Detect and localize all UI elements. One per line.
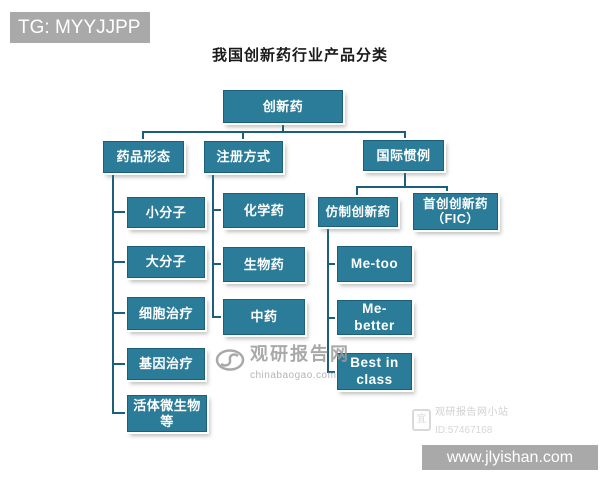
node-biological-drug: 生物药 — [223, 247, 305, 282]
node-root: 创新药 — [223, 90, 343, 123]
connector-line — [356, 186, 448, 188]
node-me-too: Me-too — [337, 246, 412, 282]
chinabaogao-watermark: 观研报告网 chinabaogao.com — [214, 344, 350, 383]
node-small-molecule: 小分子 — [127, 197, 205, 228]
connector-line — [242, 131, 244, 141]
diagram-title: 我国创新药行业产品分类 — [0, 44, 600, 65]
node-me-better: Me-better — [337, 300, 412, 335]
node-registration: 注册方式 — [204, 141, 283, 173]
connector-line — [112, 363, 127, 365]
site-url-banner: www.jlyishan.com — [422, 445, 598, 470]
connector-line — [112, 312, 127, 314]
connector-line — [356, 186, 358, 197]
connector-line — [327, 263, 337, 265]
node-cell-therapy: 细胞治疗 — [127, 297, 205, 330]
corner-watermark-id: ID:57467168 — [435, 425, 492, 436]
node-imitative-innovative: 仿制创新药 — [318, 197, 398, 227]
corner-watermark-name: 观研报告网小站 — [435, 407, 509, 418]
site-corner-watermark: 宜 观研报告网小站 ID:57467168 — [412, 402, 509, 438]
node-large-molecule: 大分子 — [127, 246, 205, 278]
watermark-domain-text: chinabaogao.com — [250, 370, 336, 381]
node-tcm-drug: 中药 — [223, 299, 305, 335]
connector-line — [142, 131, 144, 141]
connector-line — [404, 131, 406, 140]
connector-line — [112, 261, 127, 263]
node-drug-form: 药品形态 — [103, 141, 184, 173]
connector-line — [212, 209, 223, 211]
tg-watermark-banner: TG: MYYJJPP — [10, 12, 150, 43]
connector-line — [446, 186, 448, 193]
node-international: 国际惯例 — [363, 140, 444, 171]
connector-line — [327, 317, 337, 319]
eye-swirl-logo-icon — [214, 346, 246, 378]
connector-line — [142, 131, 406, 133]
site-badge-icon: 宜 — [412, 409, 431, 431]
connector-line — [212, 173, 214, 317]
node-gene-therapy: 基因治疗 — [127, 348, 205, 380]
node-first-in-class: 首创创新药 （FIC） — [413, 193, 498, 230]
connector-line — [212, 316, 223, 318]
watermark-brand-text: 观研报告网 — [250, 344, 350, 364]
connector-line — [112, 412, 127, 414]
connector-line — [112, 173, 114, 414]
connector-line — [212, 263, 223, 265]
connector-line — [404, 171, 406, 187]
first-in-class-label: 首创创新药 — [418, 197, 493, 212]
node-live-microbes: 活体微生物等 — [127, 395, 207, 432]
node-chemical-drug: 化学药 — [223, 193, 305, 228]
connector-line — [112, 211, 127, 213]
first-in-class-sublabel: （FIC） — [418, 212, 493, 227]
